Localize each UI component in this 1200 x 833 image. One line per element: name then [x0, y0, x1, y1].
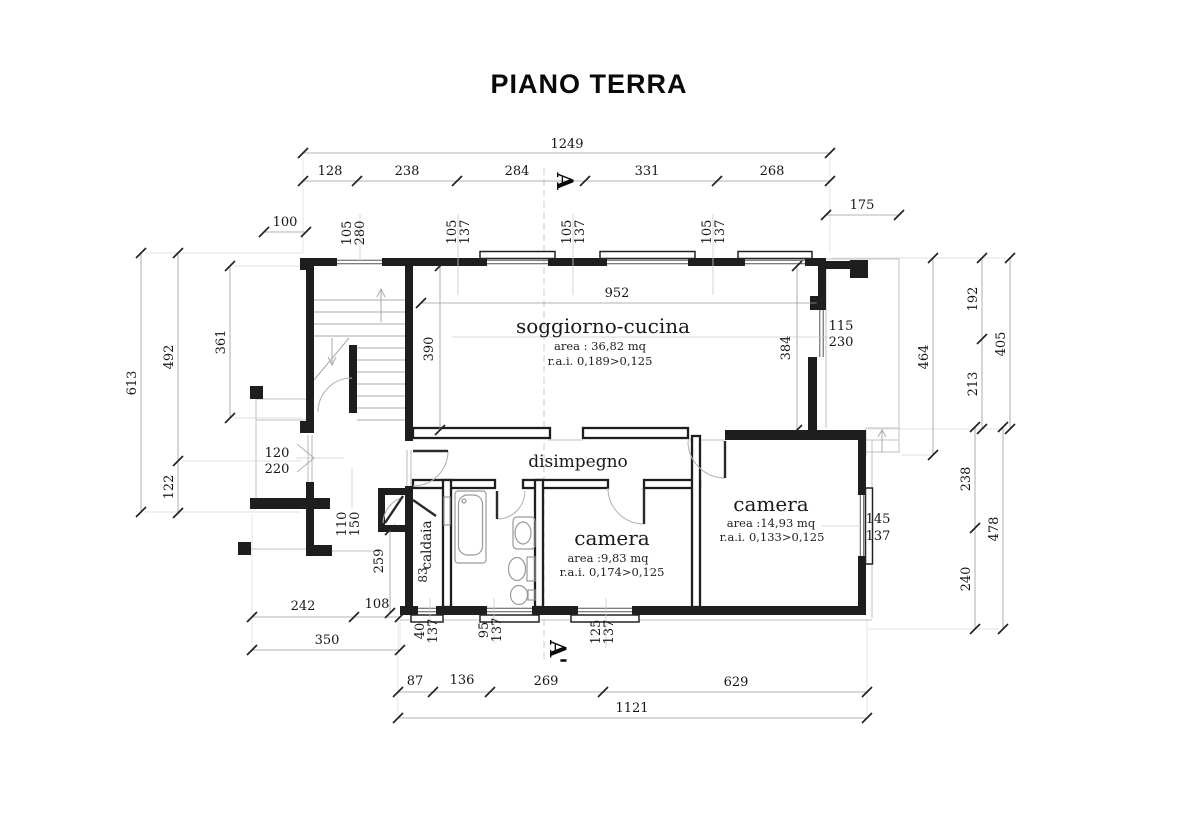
label-camera-small-window-h: 137 — [602, 620, 617, 645]
bath-fixtures — [444, 491, 535, 605]
dim-right-soggiorno: 464 — [917, 345, 932, 370]
staircase — [314, 289, 405, 420]
label-caldaia-window-h: 137 — [426, 619, 441, 644]
room-area-soggiorno: area : 36,82 mq — [554, 339, 647, 353]
label-top-window-3-h: 137 — [713, 220, 728, 245]
balcony-door-opening — [820, 310, 823, 357]
dim-bottom-left-total: 350 — [315, 633, 340, 648]
dim-bottom-108: 108 — [365, 597, 390, 612]
label-camera-large-window-w: 145 — [866, 512, 891, 527]
dim-soggiorno-depth-right: 384 — [779, 336, 794, 361]
sink — [513, 517, 535, 549]
label-stair-window-h: 280 — [353, 221, 368, 246]
entrance-opening — [308, 435, 312, 482]
svg-text:137: 137 — [426, 619, 441, 644]
dim-top-total: 1249 — [550, 137, 583, 152]
svg-text:150: 150 — [348, 512, 363, 537]
svg-text:137: 137 — [490, 618, 505, 643]
dim-stair-depth: 361 — [214, 330, 229, 355]
svg-text:492: 492 — [162, 345, 177, 370]
svg-text:213: 213 — [966, 372, 981, 397]
dim-top-5: 268 — [760, 164, 785, 179]
svg-text:137: 137 — [458, 220, 473, 245]
section-marker-top: A — [551, 171, 577, 190]
svg-text:384: 384 — [779, 336, 794, 361]
room-label-soggiorno: soggiorno-cucina — [516, 314, 690, 338]
room-label-disimpegno: disimpegno — [528, 452, 628, 472]
dim-porch-width: 100 — [273, 215, 298, 230]
dim-left-lower: 122 — [162, 475, 177, 500]
dim-right-lower-total: 478 — [987, 517, 1002, 542]
label-camera-large-window-h: 137 — [866, 529, 891, 544]
room-rai-camera-large: r.a.i. 0,133>0,125 — [720, 530, 825, 544]
label-side-door-h: 150 — [348, 512, 363, 537]
svg-text:280: 280 — [353, 221, 368, 246]
dim-terrace-width: 175 — [850, 198, 875, 213]
svg-text:240: 240 — [959, 567, 974, 592]
toilet — [509, 557, 536, 581]
dim-bottom-242: 242 — [291, 599, 316, 614]
bathtub — [455, 491, 486, 563]
dim-bottom-269: 269 — [534, 674, 559, 689]
room-rai-soggiorno: r.a.i. 0,189>0,125 — [548, 354, 653, 368]
stair-up-arrow — [377, 289, 385, 322]
svg-text:464: 464 — [917, 345, 932, 370]
room-area-camera-small: area :9,83 mq — [567, 551, 649, 565]
room-label-caldaia: caldaia — [419, 521, 435, 570]
room-rai-camera-small: r.a.i. 0,174>0,125 — [560, 565, 665, 579]
dim-right-238: 238 — [959, 467, 974, 492]
svg-text:137: 137 — [573, 220, 588, 245]
label-balcony-door-w: 115 — [829, 319, 854, 334]
label-top-window-1-h: 137 — [458, 220, 473, 245]
dim-bottom-629: 629 — [724, 675, 749, 690]
side-door — [383, 496, 404, 523]
dim-top-4: 331 — [635, 164, 660, 179]
terrace-pillar — [850, 260, 868, 278]
dim-caldaia-depth: 259 — [372, 549, 387, 574]
porch-pillar-2 — [238, 542, 251, 555]
label-bath-window-h: 137 — [490, 618, 505, 643]
dim-top-1: 128 — [318, 164, 343, 179]
dim-soggiorno-width: 952 — [605, 286, 630, 301]
dim-left-total: 613 — [125, 371, 140, 396]
floor-plan-page: PIANO TERRA A A' 1249 128 238 284 331 26… — [0, 0, 1200, 833]
svg-text:390: 390 — [422, 337, 437, 362]
bath-door — [497, 491, 525, 519]
svg-text:478: 478 — [987, 517, 1002, 542]
dim-left-upper: 492 — [162, 345, 177, 370]
svg-text:613: 613 — [125, 371, 140, 396]
porch-outline — [251, 399, 725, 551]
stair-down-arrow — [328, 338, 336, 365]
dim-right-240: 240 — [959, 567, 974, 592]
stair-window — [337, 260, 382, 263]
top-window-2 — [600, 252, 695, 264]
bidet — [511, 586, 536, 605]
stair-door — [318, 378, 352, 412]
porch-pillar — [250, 386, 263, 399]
svg-text:137: 137 — [602, 620, 617, 645]
svg-text:238: 238 — [959, 467, 974, 492]
label-top-window-2-h: 137 — [573, 220, 588, 245]
svg-text:caldaia: caldaia — [419, 521, 435, 570]
svg-text:361: 361 — [214, 330, 229, 355]
label-balcony-door-h: 230 — [829, 335, 854, 350]
svg-text:259: 259 — [372, 549, 387, 574]
dim-top-3: 284 — [505, 164, 530, 179]
room-label-camera-large: camera — [733, 492, 808, 516]
dim-bottom-136: 136 — [450, 673, 475, 688]
dim-right-upper-total: 405 — [994, 332, 1009, 357]
section-marker-bottom: A' — [544, 639, 570, 664]
room-area-camera-large: area :14,93 mq — [727, 516, 816, 530]
label-entrance-door-h: 220 — [265, 462, 290, 477]
room-label-camera-small: camera — [574, 526, 649, 550]
label-entrance-door-w: 120 — [265, 446, 290, 461]
svg-text:A': A' — [544, 639, 570, 664]
svg-text:A: A — [551, 171, 577, 190]
floor-plan-drawing: PIANO TERRA A A' 1249 128 238 284 331 26… — [0, 0, 1200, 833]
svg-text:405: 405 — [994, 332, 1009, 357]
svg-text:137: 137 — [713, 220, 728, 245]
terrace-steps-up-arrow — [878, 430, 886, 452]
camera-small-door — [608, 488, 644, 524]
svg-text:192: 192 — [966, 287, 981, 312]
svg-text:122: 122 — [162, 475, 177, 500]
dim-soggiorno-depth-left: 390 — [422, 337, 437, 362]
dim-right-192: 192 — [966, 287, 981, 312]
hall-door-threshold — [407, 450, 411, 486]
dim-right-213: 213 — [966, 372, 981, 397]
page-title: PIANO TERRA — [490, 69, 687, 99]
bath-window — [480, 608, 539, 622]
dim-bottom-total: 1121 — [615, 701, 648, 716]
dim-bottom-87: 87 — [407, 674, 424, 689]
dim-top-2: 238 — [395, 164, 420, 179]
caldaia-door — [413, 500, 436, 516]
